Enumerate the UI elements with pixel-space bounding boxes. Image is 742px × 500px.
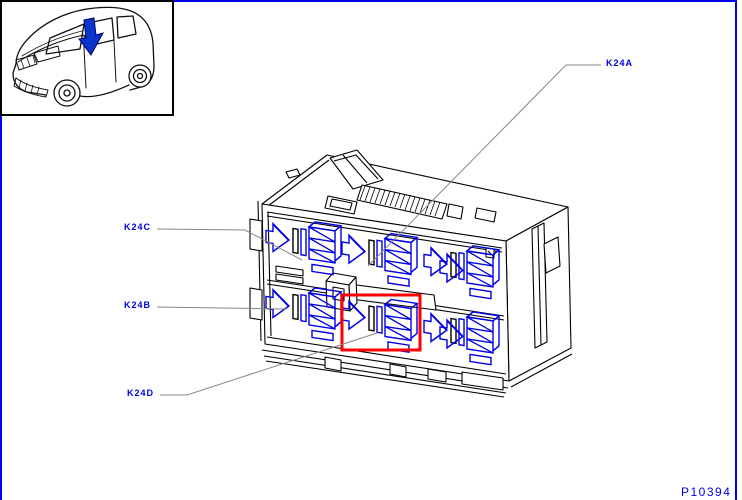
foot bbox=[390, 364, 406, 377]
vehicle-inset bbox=[1, 1, 173, 115]
mount-tab bbox=[544, 237, 560, 273]
callout-label-k24b: K24B bbox=[124, 300, 151, 310]
left-tab bbox=[250, 288, 262, 320]
foot bbox=[325, 357, 341, 371]
diagram-canvas bbox=[0, 0, 742, 500]
callout-label-k24a: K24A bbox=[606, 58, 633, 68]
left-tab bbox=[250, 219, 262, 251]
top-slot bbox=[447, 204, 463, 219]
callout-label-k24c: K24C bbox=[124, 222, 151, 232]
figure-part-number: P10394 bbox=[681, 485, 731, 499]
callout-label-k24d: K24D bbox=[127, 388, 154, 398]
car-front-wheel bbox=[54, 80, 80, 106]
technical-diagram-page: K24A K24C K24B K24D P10394 bbox=[0, 0, 742, 500]
car-rear-wheel bbox=[129, 65, 151, 87]
